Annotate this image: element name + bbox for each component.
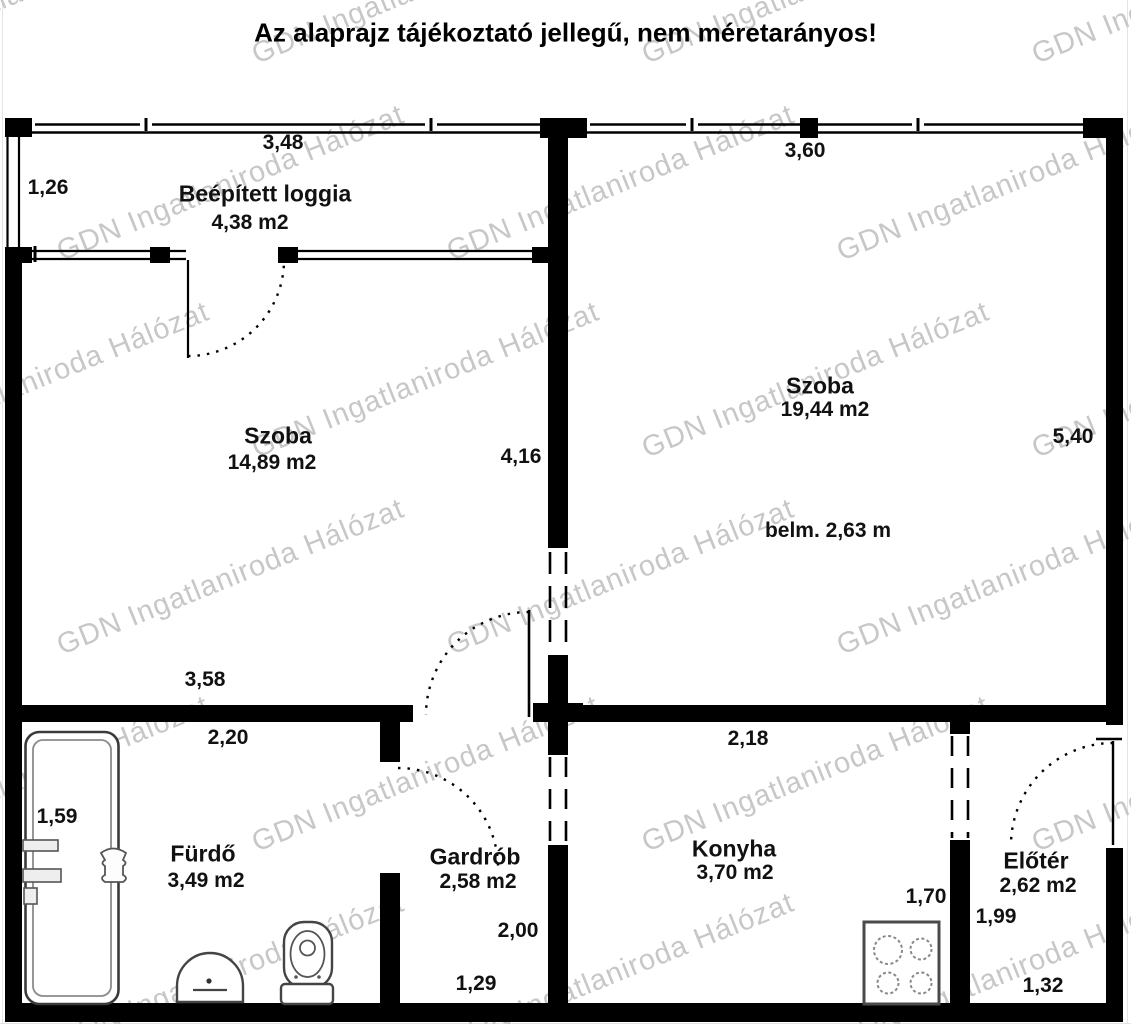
dim-gardrob-depth: 2,00 bbox=[498, 919, 539, 943]
page-title: Az alaprajz tájékoztató jellegű, nem mér… bbox=[254, 18, 877, 49]
dashed-opening-central bbox=[550, 552, 566, 653]
window-szoba-right-top bbox=[587, 118, 1083, 133]
faucet-handle bbox=[23, 840, 58, 851]
faucet-handle bbox=[23, 869, 61, 882]
dim-konyha-right: 1,70 bbox=[906, 885, 947, 909]
room-label-loggia: Beépített loggia bbox=[179, 181, 352, 208]
door-swing-arc bbox=[1011, 743, 1113, 845]
room-area-konyha: 3,70 m2 bbox=[696, 861, 773, 885]
dim-loggia-depth: 1,26 bbox=[28, 176, 69, 200]
dim-konyha-width: 2,18 bbox=[728, 727, 769, 751]
dashed-opening-konyha-eloter bbox=[952, 736, 968, 838]
room-label-konyha: Konyha bbox=[692, 836, 776, 863]
door-entrance bbox=[1011, 739, 1122, 845]
window-loggia-left bbox=[8, 137, 20, 247]
stove-icon bbox=[864, 922, 939, 1004]
dim-szoba-left-width: 3,58 bbox=[185, 668, 226, 692]
room-area-furdo: 3,49 m2 bbox=[167, 869, 244, 893]
shower-fitting bbox=[101, 849, 126, 883]
dim-loggia-width: 3,48 bbox=[263, 131, 304, 155]
dim-eloter-width: 1,32 bbox=[1023, 974, 1064, 998]
room-area-gardrob: 2,58 m2 bbox=[439, 870, 516, 894]
dim-szoba-right-width: 3,60 bbox=[785, 139, 826, 163]
room-area-eloter: 2,62 m2 bbox=[999, 874, 1076, 898]
dim-szoba-left-depth: 4,16 bbox=[501, 445, 542, 469]
door-swing-arc bbox=[426, 612, 529, 715]
bathtub-icon bbox=[23, 732, 126, 1004]
door-loggia bbox=[188, 260, 284, 358]
room-label-szoba-right: Szoba bbox=[786, 373, 854, 400]
dim-gardrob-width: 1,29 bbox=[456, 972, 497, 996]
dim-eloter-depth: 1,99 bbox=[976, 905, 1017, 929]
room-label-gardrob: Gardrób bbox=[430, 844, 521, 871]
sink-icon bbox=[177, 953, 243, 1002]
room-area-loggia: 4,38 m2 bbox=[211, 211, 288, 235]
room-area-szoba-left: 14,89 m2 bbox=[228, 451, 317, 475]
dim-furdo-depth: 1,59 bbox=[37, 805, 78, 829]
floorplan-page: GDN Ingatlaniroda HálózatGDN Ingatlaniro… bbox=[0, 0, 1131, 1024]
room-label-szoba-left: Szoba bbox=[244, 423, 312, 450]
room-note-ceiling-height: belm. 2,63 m bbox=[765, 519, 891, 543]
dashed-opening-gardrob-konyha bbox=[550, 757, 566, 843]
room-label-eloter: Előtér bbox=[1003, 848, 1068, 875]
faucet-spout bbox=[24, 888, 37, 904]
door-szoba-left bbox=[426, 610, 529, 717]
toilet-icon bbox=[281, 922, 333, 1004]
door-swing-arc bbox=[188, 260, 284, 356]
room-area-szoba-right: 19,44 m2 bbox=[781, 398, 870, 422]
dim-szoba-right-depth: 5,40 bbox=[1053, 425, 1094, 449]
room-label-furdo: Fürdő bbox=[170, 841, 235, 868]
dim-furdo-width: 2,20 bbox=[208, 726, 249, 750]
window-loggia-bottom bbox=[22, 246, 532, 262]
